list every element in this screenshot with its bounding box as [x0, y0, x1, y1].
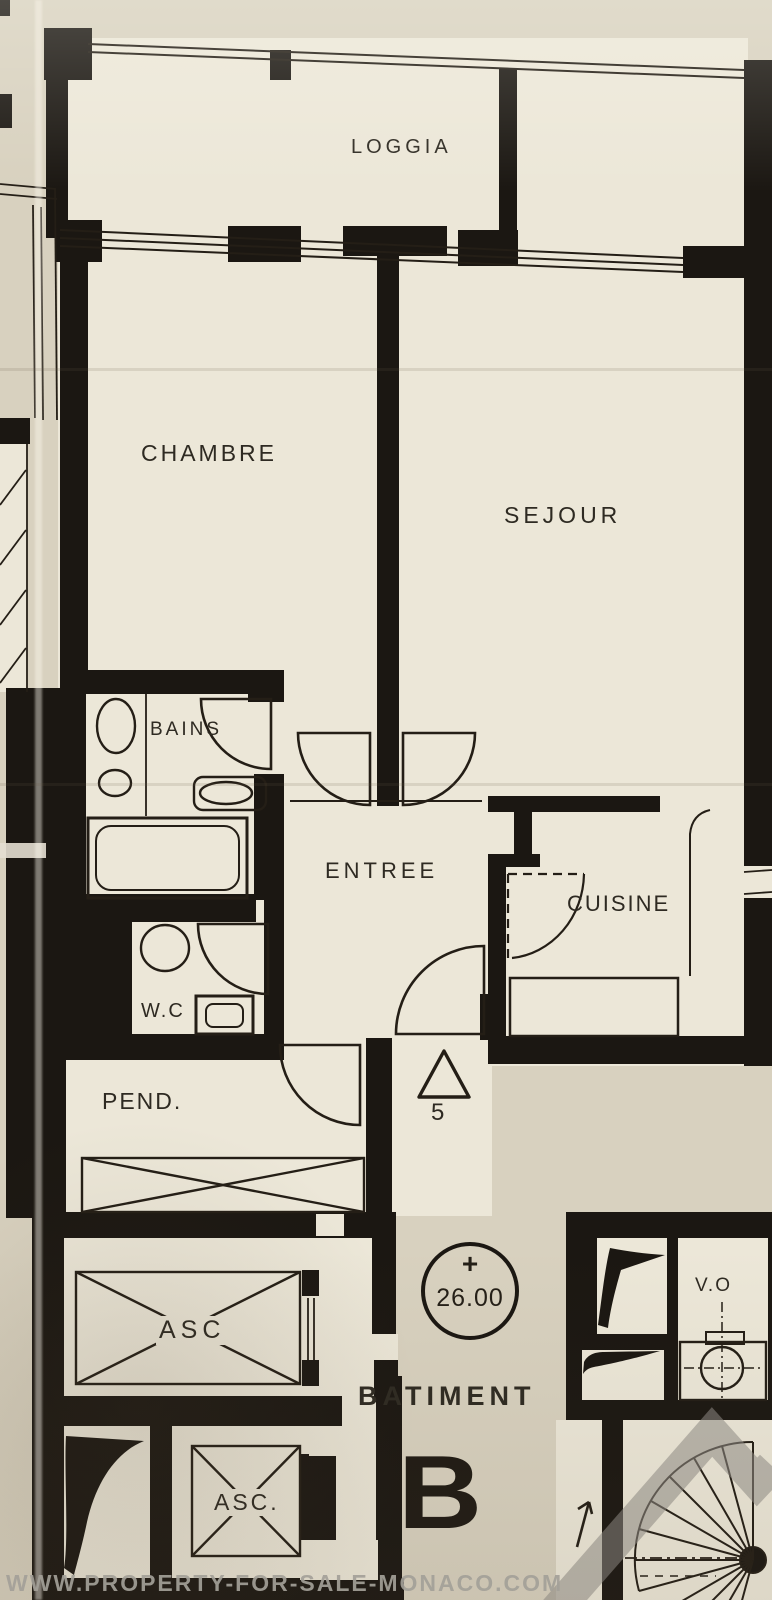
service-room-vo: [678, 1238, 768, 1400]
wall-cuisine-bottom-band: [488, 1036, 772, 1064]
floor-plan-scan: LOGGIA CHAMBRE SEJOUR BAINS ENTREE CUISI…: [0, 0, 772, 1600]
room-label-entree: ENTREE: [325, 858, 438, 884]
wall-loggia-divider: [499, 68, 517, 248]
right-wall-window: [744, 866, 772, 898]
wall-loggia-left: [46, 60, 68, 238]
level-marker-icon: + 26.00: [421, 1242, 519, 1340]
service-room-duct-b: [582, 1350, 664, 1400]
wall-rail-post: [270, 50, 291, 80]
wall-hall-right-a: [372, 1212, 396, 1334]
wall-pend-right: [366, 1038, 392, 1218]
jamb-notch-lower-2: [300, 1540, 378, 1580]
room-label-asc-upper: ASC: [156, 1316, 228, 1345]
room-label-chambre: CHAMBRE: [141, 440, 277, 467]
wall-sejour-top-right: [683, 246, 772, 278]
jamb-notch-upper: [370, 1334, 398, 1360]
wall-wc-right: [264, 894, 284, 1040]
hall-band-notch: [316, 1214, 344, 1236]
stair-block-corridor: [556, 1420, 602, 1600]
level-marker-plus: +: [425, 1248, 515, 1280]
asc-door-jamb-top: [302, 1270, 319, 1296]
wall-cuisine-left: [488, 854, 506, 1040]
room-label-pend: PEND.: [102, 1088, 182, 1115]
level-marker-value: 26.00: [425, 1284, 515, 1313]
wall-wc-pend-band: [32, 1034, 284, 1060]
room-label-bains: BAINS: [150, 719, 222, 741]
building-label: BATIMENT: [358, 1381, 535, 1412]
dark-band-left: [6, 688, 86, 1060]
wall-window-block-b: [228, 226, 301, 262]
room-label-wc: W.C: [141, 1000, 185, 1023]
photo-edge-mark-a: [0, 0, 10, 16]
building-letter: B: [398, 1434, 482, 1553]
stairwell-floor: [623, 1420, 772, 1600]
wall-bottom-band: [32, 1578, 404, 1600]
wall-chambre-left: [60, 236, 88, 694]
wall-left-lower: [32, 1218, 64, 1600]
dark-band-fold-gap: [0, 843, 46, 858]
service-room-duct-a: [597, 1238, 667, 1334]
jamb-notch-lower-1: [309, 1426, 337, 1456]
wall-stairwell-left: [602, 1420, 623, 1600]
asc-door-jamb-bottom: [302, 1360, 319, 1386]
room-label-vo: V.O: [695, 1275, 732, 1297]
pend-landing-floor: [32, 1034, 492, 1216]
wall-cuisine-top: [488, 796, 660, 812]
wall-bains-right-stub: [248, 670, 284, 702]
apartment-number: 5: [431, 1099, 444, 1127]
neighbor-wall-stub: [0, 418, 30, 444]
room-label-sejour: SEJOUR: [504, 502, 621, 529]
dark-band-left-lower: [6, 1060, 66, 1218]
room-label-cuisine: CUISINE: [567, 891, 670, 917]
wall-hall-band-lower: [36, 1396, 342, 1426]
wall-ascb-door-side: [300, 1454, 336, 1540]
neighbor-stair-box: [0, 444, 28, 692]
wall-cuisine-jamb: [514, 812, 532, 856]
wall-partition-chambre-sejour: [377, 250, 399, 806]
photo-edge-mark-b: [0, 94, 12, 128]
wall-building-right: [744, 60, 772, 1066]
room-label-loggia: LOGGIA: [351, 136, 452, 159]
wall-window-block-c: [458, 230, 518, 266]
wall-divider-lower-rooms: [150, 1424, 172, 1586]
wall-bains-right-lower: [254, 774, 284, 900]
wall-wc-left: [84, 894, 132, 1040]
room-label-asc-lower: ASC.: [211, 1489, 283, 1516]
